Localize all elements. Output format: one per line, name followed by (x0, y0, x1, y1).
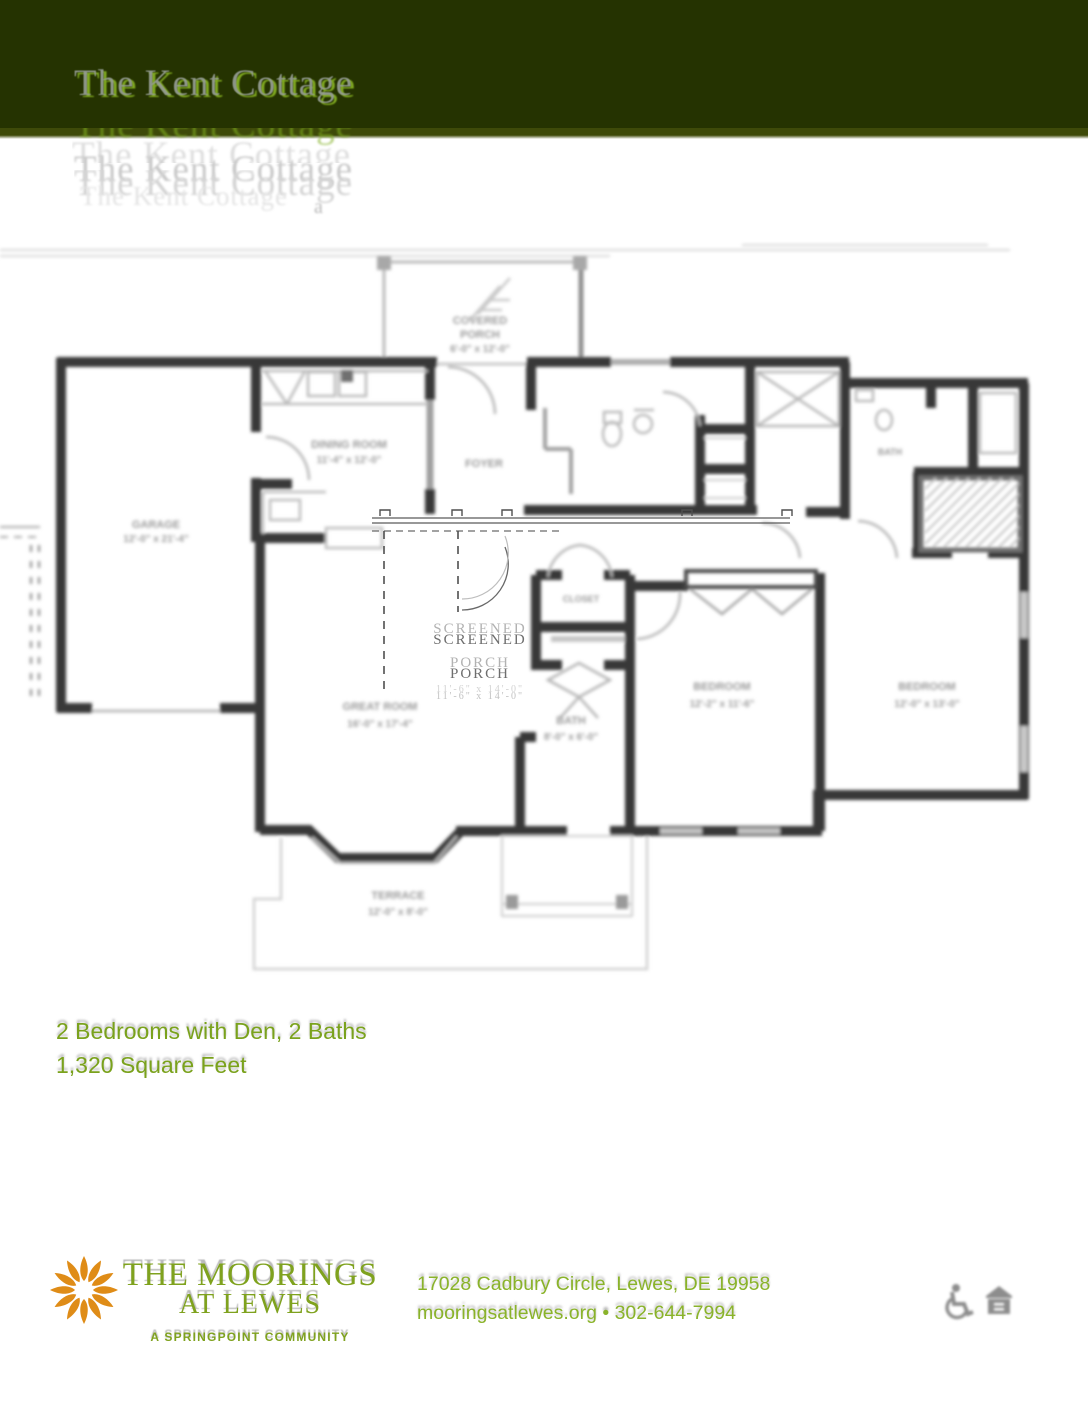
svg-text:PORCH: PORCH (450, 666, 510, 682)
svg-text:GARAGE: GARAGE (132, 519, 180, 531)
svg-text:11'-6" x 14'-0": 11'-6" x 14'-0" (436, 691, 524, 702)
svg-text:11'-4" x 12'-0": 11'-4" x 12'-0" (317, 455, 382, 466)
svg-text:BATH: BATH (556, 715, 586, 727)
svg-text:FOYER: FOYER (465, 458, 503, 470)
svg-text:GREAT ROOM: GREAT ROOM (343, 701, 418, 713)
svg-text:12'-0" x 8'-0": 12'-0" x 8'-0" (368, 907, 428, 918)
svg-text:8'-0" x 6'-0": 8'-0" x 6'-0" (544, 732, 599, 743)
svg-text:CLOSET: CLOSET (563, 594, 600, 604)
svg-text:SCREENED: SCREENED (433, 632, 527, 648)
svg-text:TERRACE: TERRACE (371, 890, 424, 902)
svg-text:12'-0" x 21'-4": 12'-0" x 21'-4" (123, 534, 189, 545)
svg-text:12'-2" x 11'-6": 12'-2" x 11'-6" (690, 699, 755, 710)
svg-text:PORCH: PORCH (460, 329, 500, 341)
svg-text:BEDROOM: BEDROOM (693, 681, 750, 693)
svg-text:BATH: BATH (878, 447, 902, 457)
svg-text:16'-0" x 17'-4": 16'-0" x 17'-4" (347, 719, 413, 730)
svg-text:12'-0" x 13'-0": 12'-0" x 13'-0" (894, 699, 960, 710)
svg-text:6'-0" x 12'-0": 6'-0" x 12'-0" (450, 344, 510, 355)
svg-text:BEDROOM: BEDROOM (898, 681, 955, 693)
svg-text:DINING ROOM: DINING ROOM (311, 439, 387, 451)
svg-text:COVERED: COVERED (453, 315, 507, 327)
